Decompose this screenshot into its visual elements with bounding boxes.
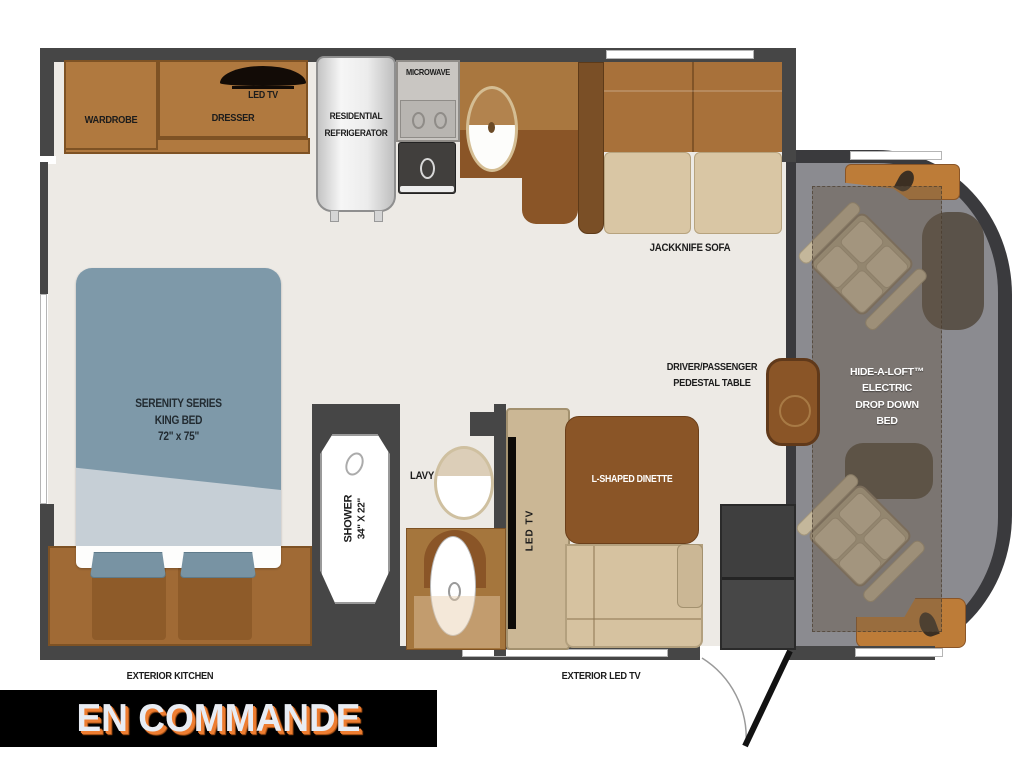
order-banner-text: EN COMMANDE xyxy=(76,697,360,741)
exterior-kitchen-label: EXTERIOR KITCHEN xyxy=(104,671,236,683)
hide-a-loft-line: BED xyxy=(822,413,952,429)
rv-floorplan: HIDE-A-LOFT™ ELECTRIC DROP DOWN BED WARD… xyxy=(0,0,1024,768)
door-swing-arc xyxy=(702,658,746,744)
exterior-led-tv-label: EXTERIOR LED TV xyxy=(535,671,667,683)
hide-a-loft-line: HIDE-A-LOFT™ xyxy=(822,364,952,380)
hide-a-loft-label: HIDE-A-LOFT™ ELECTRIC DROP DOWN BED xyxy=(822,364,952,429)
hide-a-loft-line: DROP DOWN xyxy=(822,397,952,413)
hide-a-loft-line: ELECTRIC xyxy=(822,380,952,396)
entry-door xyxy=(745,651,790,746)
order-banner: EN COMMANDE xyxy=(0,690,437,747)
